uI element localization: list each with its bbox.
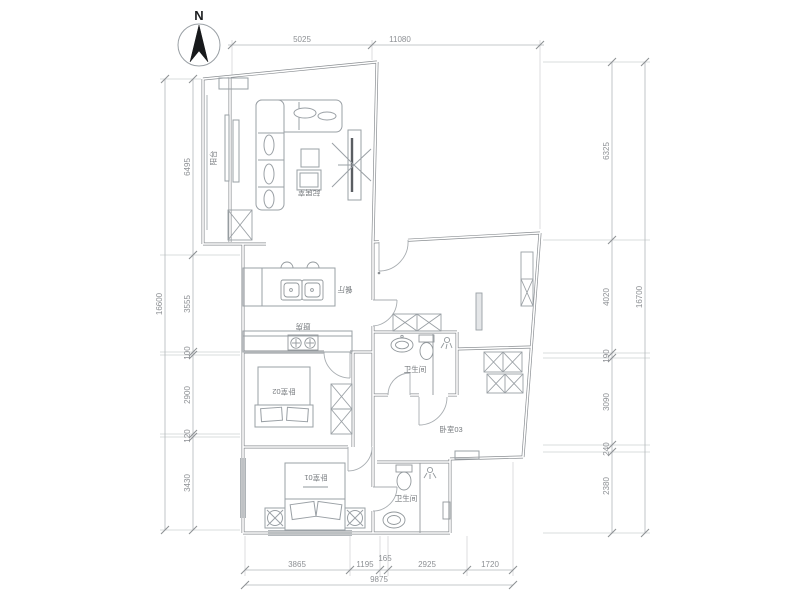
dim-right-1: 6325 [602,142,611,160]
label-bedroom3: 卧室03 [439,424,462,434]
bedroom2-furniture [255,367,313,427]
bedroom3-wardrobe [484,352,523,393]
kitchen-furniture [243,262,352,352]
dim-left-3: 100 [183,346,192,360]
dim-top-2: 11080 [389,35,411,44]
bedroom2-wardrobe [331,384,352,434]
room-labels: 阳台 起居室 餐厅 厨房 卧室02 卧室01 卧室03 卫生间 卫生间 [208,151,463,504]
dim-bottom-3: 165 [378,554,392,563]
label-kitchen: 厨房 [296,322,311,332]
nightstand-left [265,508,285,528]
label-bedroom1: 卧室01 [304,473,327,483]
dim-bottom-1: 3865 [288,560,306,569]
dim-right-3: 190 [602,349,611,363]
coffee-table [297,149,321,190]
label-balcony: 阳台 [208,151,218,166]
dim-bottom-5: 1720 [481,560,499,569]
label-master-bath: 卫生间 [404,364,427,374]
dim-bottom-total: 9875 [370,575,388,584]
floor-plan-drawing: N [0,0,800,600]
shower-head [441,337,452,349]
dim-left-1: 6495 [183,158,192,176]
dim-left-2: 3555 [183,295,192,313]
label-bedroom2: 卧室02 [272,387,295,397]
dim-left-5: 120 [183,429,192,443]
shower-head-guest [424,467,436,479]
bedroom2-door [324,352,350,378]
right-wall-panel [521,252,533,306]
north-label: N [194,8,203,23]
island-sink-counter [243,262,335,306]
nightstand-right [345,508,365,528]
bedroom1-door [348,447,372,471]
bedroom3-door [419,397,447,425]
dim-right-4: 3090 [602,393,611,411]
dim-left-6: 3430 [183,474,192,492]
label-dining: 餐厅 [337,285,352,294]
dim-right-5: 240 [602,442,611,456]
guest-bath-door [373,487,397,511]
hall-closet [393,314,441,331]
dim-bottom-4: 2925 [418,560,436,569]
label-guest-bath: 卫生间 [395,493,418,503]
column [476,293,482,330]
dim-left-4: 2900 [183,386,192,404]
floor-plan-page: N [0,0,800,600]
tv-cabinet [332,130,371,200]
shaft-closet [228,210,252,240]
north-arrow-needle [190,25,208,62]
walls [203,62,540,533]
dim-right-6: 2380 [602,477,611,495]
label-living: 起居室 [297,188,320,198]
dim-top-1: 5025 [293,35,311,44]
dim-bottom-2: 1195 [356,560,374,569]
master-bath-door [388,373,410,395]
dim-left-total: 16600 [155,292,164,315]
cooktop-counter [243,331,352,352]
entry-door [378,240,408,274]
north-arrow: N [178,8,220,66]
balcony-planters [219,78,248,182]
dimension-lines [161,41,649,589]
living-room-furniture [219,78,371,210]
dim-right-total: 16700 [635,285,644,308]
dim-right-2: 4020 [602,288,611,306]
